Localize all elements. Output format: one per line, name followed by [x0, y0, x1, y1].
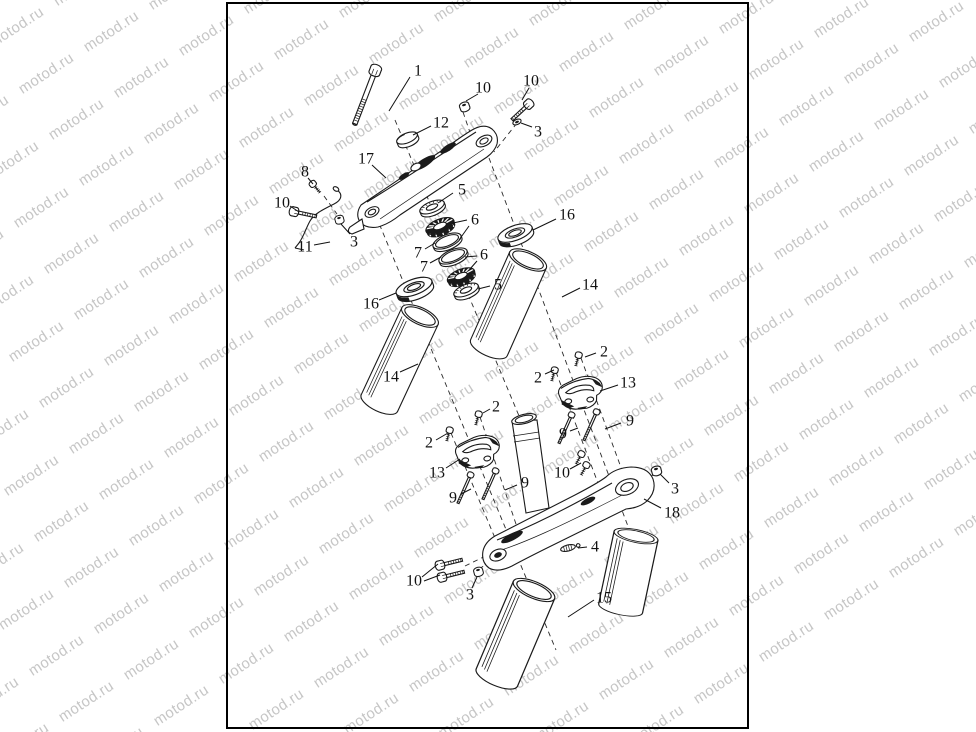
callout-leader-line	[568, 600, 594, 617]
callout-label-3: 3	[534, 124, 542, 141]
callout-label-3: 3	[671, 481, 679, 498]
callout-leader-line	[521, 123, 532, 127]
callout-leader-line	[453, 220, 467, 223]
part-screw-9	[581, 408, 601, 442]
callout-leader-line	[660, 474, 669, 483]
callout-label-2: 2	[492, 399, 500, 416]
callout-leader-line	[505, 485, 517, 490]
exploded-parts-diagram: 1101031217851063117716651614142213299213…	[0, 0, 976, 732]
callout-label-14: 14	[582, 277, 598, 294]
part-washer-12	[395, 129, 420, 150]
callout-label-6: 6	[480, 247, 488, 264]
callout-label-10: 10	[274, 195, 290, 212]
callout-leader-line	[585, 353, 596, 357]
callout-label-10: 10	[406, 573, 422, 590]
callout-label-1: 1	[414, 63, 422, 80]
part-clamp-13-left	[453, 433, 502, 472]
callout-leader-line	[413, 126, 431, 135]
part-nut-10	[459, 101, 471, 113]
callout-leader-line	[372, 165, 386, 178]
callout-label-5: 5	[458, 182, 466, 199]
callout-label-2: 2	[425, 435, 433, 452]
callout-leader-line	[483, 409, 490, 413]
part-screw-2	[472, 410, 482, 426]
part-screw-9	[455, 471, 475, 505]
callout-leader-line	[446, 459, 460, 468]
callout-label-8: 8	[301, 164, 309, 181]
part-steering-stem	[511, 411, 549, 513]
callout-leader-line	[314, 242, 330, 245]
callout-leader-line	[605, 423, 621, 429]
callout-label-10: 10	[554, 465, 570, 482]
part-screw-10	[434, 555, 463, 571]
callout-leader-line	[570, 428, 578, 431]
part-seal-16-left	[394, 273, 437, 305]
callout-label-17: 17	[358, 151, 374, 168]
callout-leader-line	[389, 77, 410, 111]
callout-label-4: 4	[591, 539, 599, 556]
callout-label-5: 5	[494, 277, 502, 294]
part-screw-10	[509, 97, 536, 123]
callout-leader-line	[470, 261, 477, 269]
part-seal-16-right	[496, 220, 537, 251]
page: motod.rumotod.rumotod.rumotod.rumotod.ru…	[0, 0, 976, 732]
callout-label-14: 14	[383, 369, 399, 386]
callout-leader-line	[436, 433, 448, 440]
part-grease-fitting-4	[560, 542, 581, 553]
part-screw-9	[480, 467, 500, 501]
callout-label-7: 7	[420, 259, 428, 276]
callout-label-2: 2	[534, 370, 542, 387]
callout-label-10: 10	[523, 73, 539, 90]
part-fork-tube-14-left	[358, 300, 442, 419]
callout-label-6: 6	[471, 212, 479, 229]
callout-label-3: 3	[350, 234, 358, 251]
callout-label-2: 2	[600, 344, 608, 361]
callout-label-10: 10	[475, 80, 491, 97]
callout-leader-line	[562, 288, 580, 297]
callout-label-15: 15	[596, 590, 612, 607]
part-screw-8	[308, 179, 323, 194]
part-bolt-1	[349, 63, 383, 127]
callout-label-13: 13	[429, 465, 445, 482]
callout-leader-line	[570, 463, 581, 469]
part-nut-3	[334, 214, 345, 225]
callout-label-12: 12	[433, 115, 449, 132]
callout-label-9: 9	[521, 475, 529, 492]
part-clamp-13-right	[556, 374, 605, 413]
callout-label-16: 16	[559, 207, 575, 224]
part-nut-3	[473, 566, 484, 577]
callout-leader-line	[478, 286, 490, 289]
part-screw-2	[443, 426, 453, 442]
callout-leader-line	[533, 219, 556, 230]
callout-label-13: 13	[620, 375, 636, 392]
callout-leader-line	[459, 226, 469, 240]
callout-leader-line	[644, 499, 661, 508]
callout-leader-line	[379, 293, 396, 300]
callout-leader-line	[422, 564, 438, 577]
callout-label-11: 11	[297, 239, 312, 256]
callout-label-9: 9	[449, 490, 457, 507]
callout-label-9: 9	[626, 413, 634, 430]
callout-leader-line	[438, 193, 453, 203]
callout-label-9: 9	[559, 426, 567, 443]
callout-label-16: 16	[363, 296, 379, 313]
callout-label-18: 18	[664, 505, 680, 522]
part-slider-15-bottom	[473, 574, 558, 694]
callout-label-3: 3	[466, 587, 474, 604]
